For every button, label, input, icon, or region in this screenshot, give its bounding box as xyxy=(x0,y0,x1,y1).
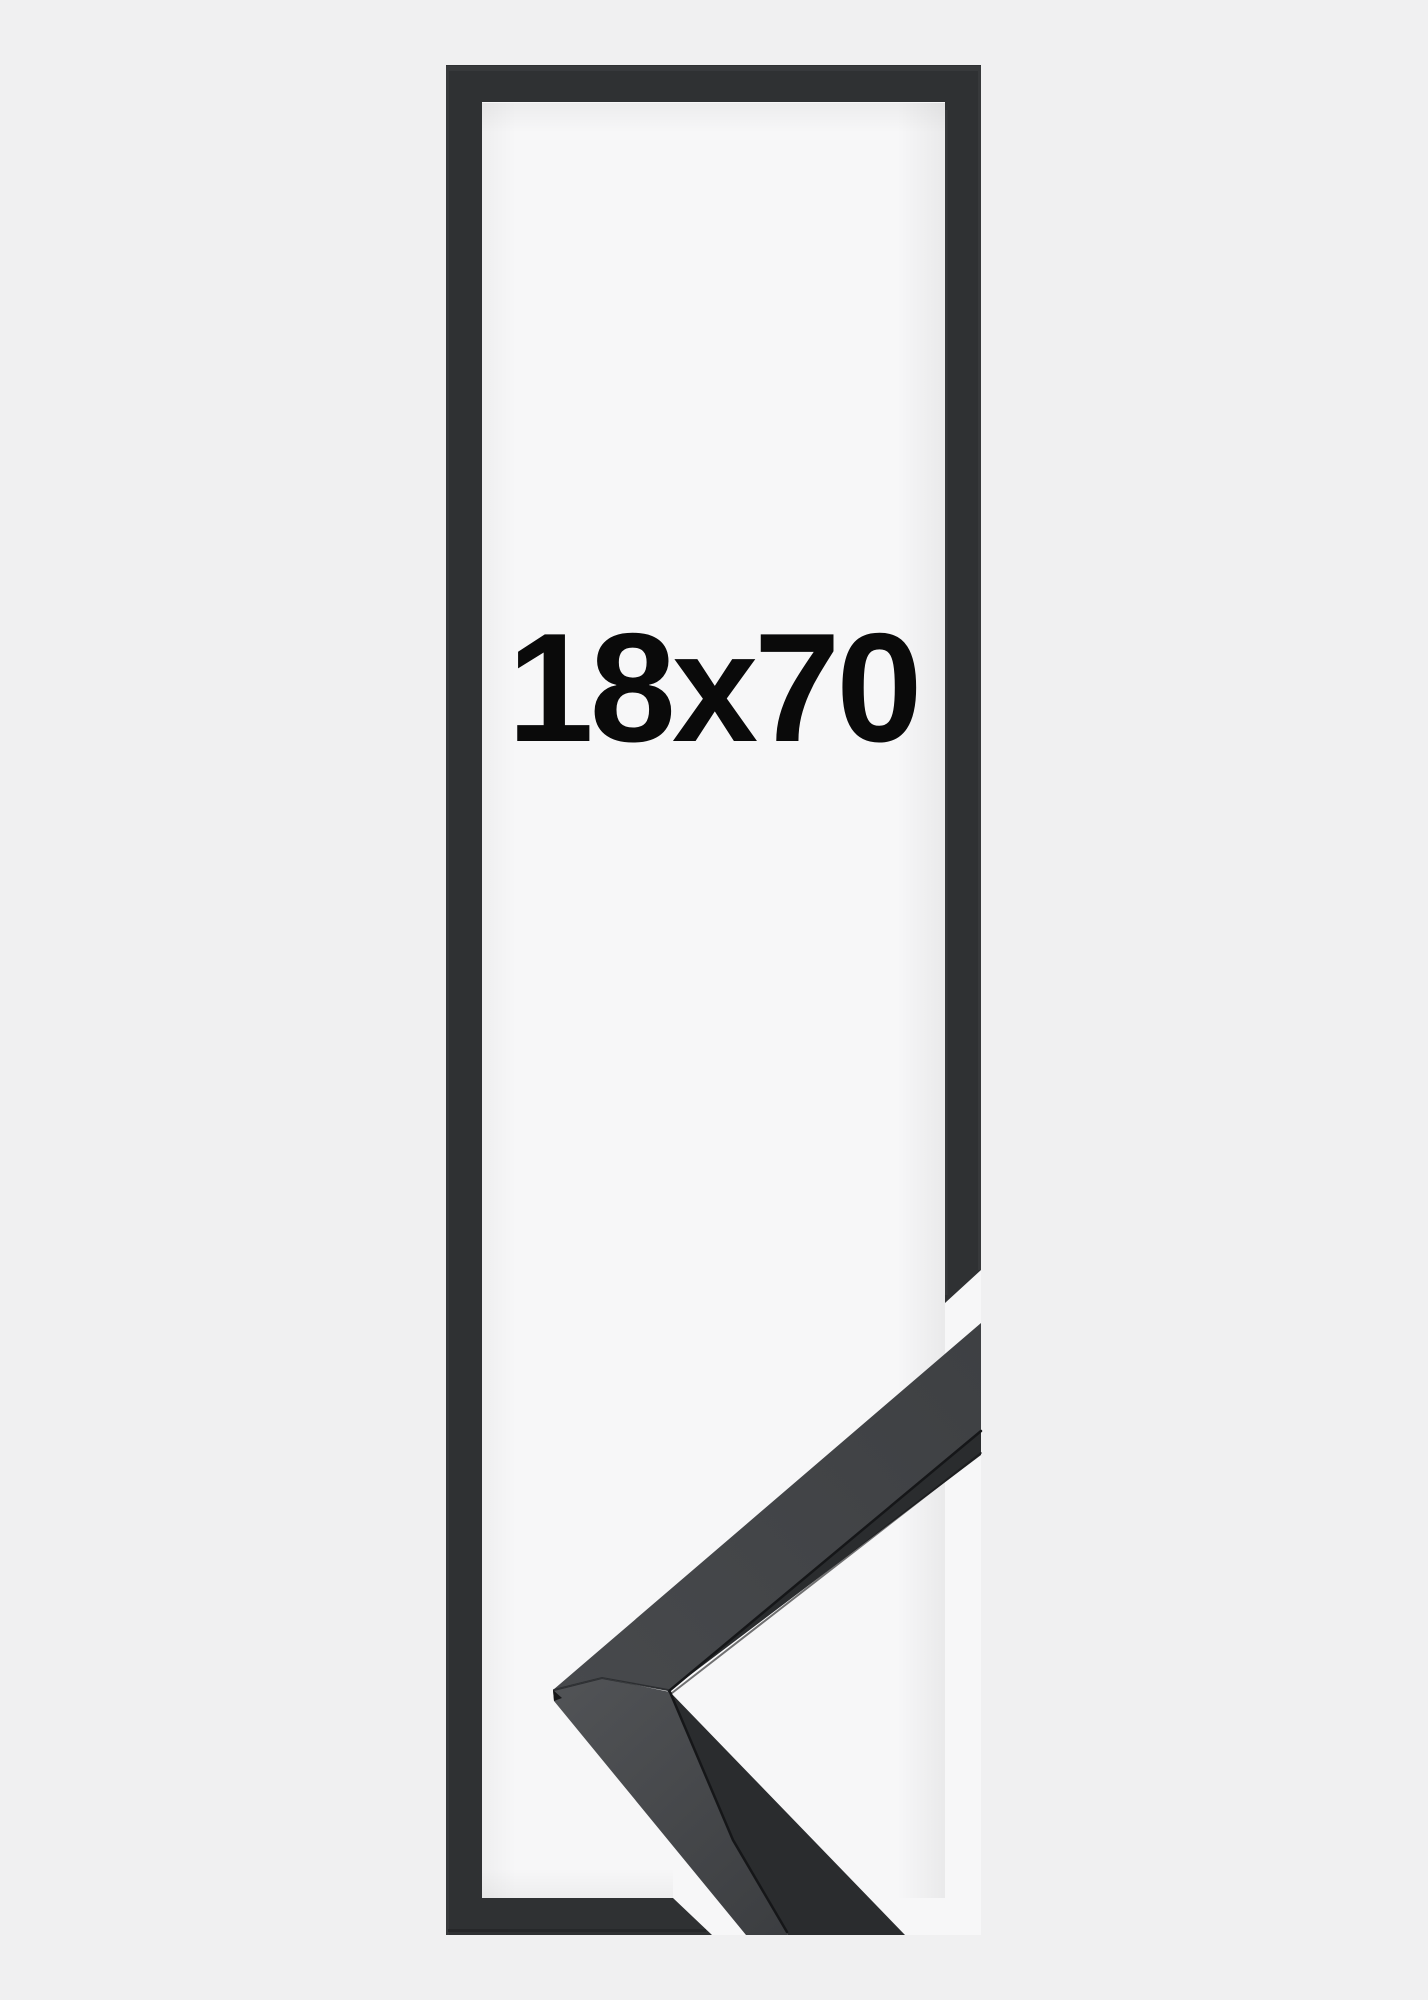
frame-mockup-graphic: 18x70 xyxy=(0,0,1428,2000)
product-image: 18x70 xyxy=(0,0,1428,2000)
size-label: 18x70 xyxy=(507,601,918,774)
